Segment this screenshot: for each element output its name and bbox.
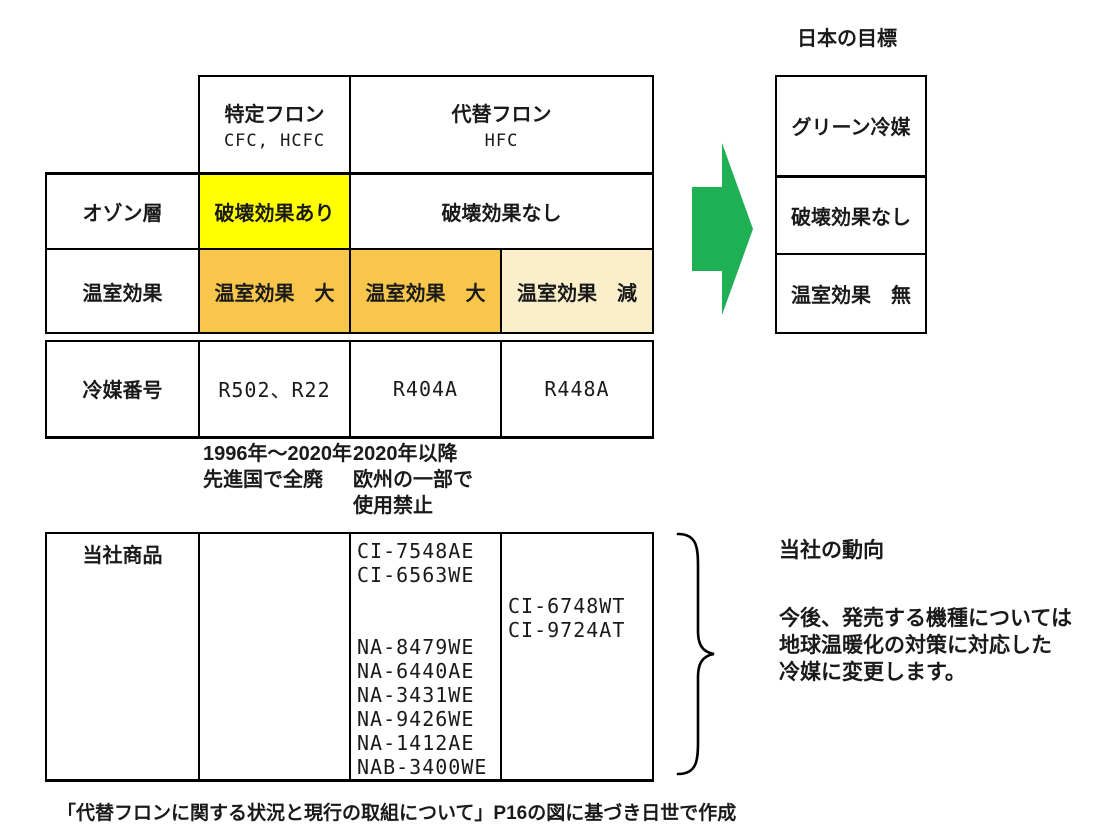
- hfc-phaseout-note: 2020年以降 欧州の一部で 使用禁止: [353, 441, 473, 519]
- greenhouse-hfc-reduced-cell: 温室効果 減: [501, 249, 653, 333]
- model-number: CI-7548AE: [357, 539, 500, 563]
- model-number-spacer: [357, 587, 500, 611]
- model-number: CI-6563WE: [357, 563, 500, 587]
- company-trend-body: 今後、発売する機種については 地球温暖化の対策に対応した 冷媒に変更します。: [779, 605, 1072, 686]
- greenhouse-specified-cell: 温室効果 大: [199, 249, 350, 333]
- products-cfc-cell: [199, 533, 350, 781]
- cfc-phaseout-line: 先進国で全廃: [203, 467, 352, 493]
- freon-refrigerant-diagram: 日本の目標 特定フロン CFC, HCFC 代替フロン HFC オゾン層 破壊効…: [0, 0, 1100, 826]
- alternative-freon-label: 代替フロン: [351, 98, 652, 127]
- refrigerant-cfc-cell: R502、R22: [199, 341, 350, 437]
- hfc-phaseout-line: 2020年以降: [353, 441, 473, 467]
- ozone-row-label: オゾン層: [46, 173, 199, 249]
- right-arrow-icon: [692, 143, 754, 315]
- greenhouse-row-label: 温室効果: [46, 249, 199, 333]
- model-number-spacer: [357, 611, 500, 635]
- refrigerant-r448a-cell: R448A: [501, 341, 653, 437]
- model-number: CI-6748WT: [508, 594, 652, 618]
- curly-brace-icon: [672, 530, 718, 778]
- goal-no-ozone-damage-cell: 破壊効果なし: [776, 176, 926, 254]
- company-trend-line: 地球温暖化の対策に対応した: [779, 632, 1072, 659]
- model-number: NA-9426WE: [357, 707, 500, 731]
- company-trend-line: 冷媒に変更します。: [779, 659, 1072, 686]
- japan-goal-table: グリーン冷媒 破壊効果なし 温室効果 無: [775, 75, 927, 334]
- model-number: NA-1412AE: [357, 731, 500, 755]
- products-r404a-cell: CI-7548AE CI-6563WE NA-8479WE NA-6440AE …: [350, 533, 501, 781]
- goal-no-greenhouse-cell: 温室効果 無: [776, 254, 926, 333]
- column-header-alternative-freon: 代替フロン HFC: [350, 76, 653, 173]
- specified-freon-sub: CFC, HCFC: [200, 131, 349, 151]
- refrigerant-number-table: 冷媒番号 R502、R22 R404A R448A: [45, 340, 654, 439]
- hfc-phaseout-line: 欧州の一部で: [353, 467, 473, 493]
- model-number: NA-3431WE: [357, 683, 500, 707]
- greenhouse-hfc-large-cell: 温室効果 大: [350, 249, 501, 333]
- model-number: NAB-3400WE: [357, 755, 500, 779]
- products-table: 当社商品 CI-7548AE CI-6563WE NA-8479WE NA-64…: [45, 532, 654, 782]
- model-number: NA-8479WE: [357, 635, 500, 659]
- cfc-phaseout-note: 1996年～2020年 先進国で全廃: [203, 441, 352, 493]
- comparison-corner-cell: [46, 76, 199, 173]
- refrigerant-number-label: 冷媒番号: [46, 341, 199, 437]
- cfc-phaseout-line: 1996年～2020年: [203, 441, 352, 467]
- company-trend-line: 今後、発売する機種については: [779, 605, 1072, 632]
- source-caption: 「代替フロンに関する状況と現行の取組について」P16の図に基づき日世で作成: [57, 798, 736, 825]
- products-r448a-cell: CI-6748WT CI-9724AT: [501, 533, 653, 781]
- company-trend-title: 当社の動向: [779, 534, 884, 564]
- specified-freon-label: 特定フロン: [200, 98, 349, 127]
- ozone-specified-cell: 破壊効果あり: [199, 173, 350, 249]
- model-number: NA-6440AE: [357, 659, 500, 683]
- products-row-label: 当社商品: [46, 533, 199, 781]
- model-number: CI-9724AT: [508, 618, 652, 642]
- refrigerant-r404a-cell: R404A: [350, 341, 501, 437]
- goal-green-refrigerant-cell: グリーン冷媒: [776, 76, 926, 176]
- column-header-specified-freon: 特定フロン CFC, HCFC: [199, 76, 350, 173]
- comparison-table: 特定フロン CFC, HCFC 代替フロン HFC オゾン層 破壊効果あり 破壊…: [45, 75, 654, 334]
- alternative-freon-sub: HFC: [351, 131, 652, 151]
- japan-goal-title: 日本の目標: [797, 22, 897, 51]
- ozone-alternative-cell: 破壊効果なし: [350, 173, 653, 249]
- hfc-phaseout-line: 使用禁止: [353, 493, 473, 519]
